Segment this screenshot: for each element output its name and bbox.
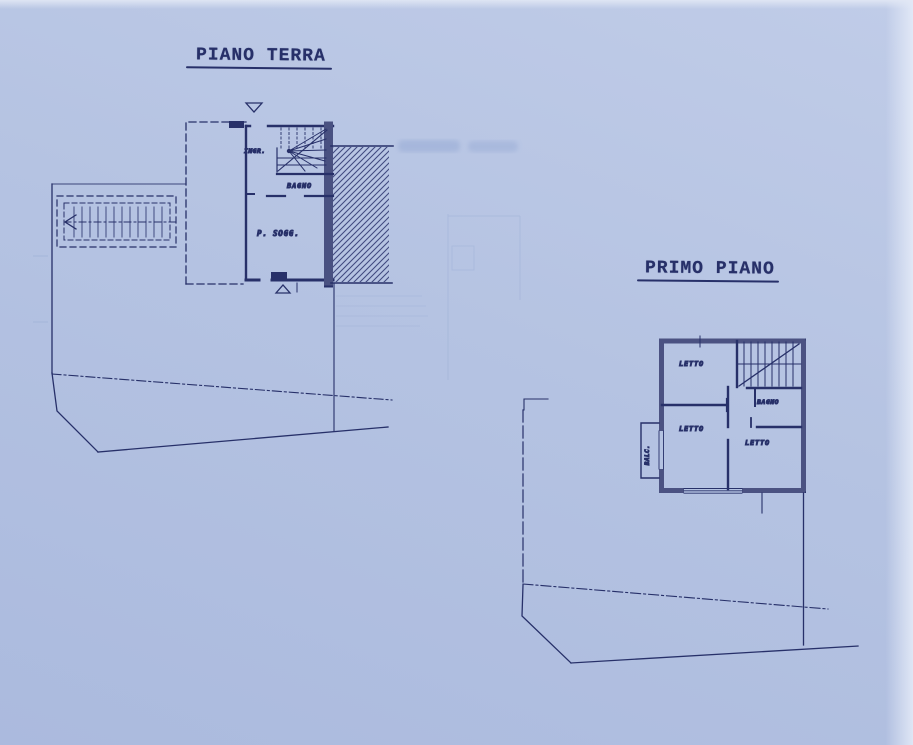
first-staircase [737,341,801,387]
south-entry-marker-icon [276,285,290,293]
ground-floor-plan: INGR. BAGNO P. SOGG. [52,103,393,452]
first-interior-walls [662,387,801,489]
room-label-soggiorno: P. SOGG. [257,229,300,238]
scanned-floor-plan-page: PIANO TERRA PRIMO PIANO [0,0,913,745]
ground-interior-walls [246,194,333,196]
room-label-ingresso: INGR. [244,147,266,155]
room-label-bagno-first: BAGNO [756,398,779,406]
driveway-ramp [57,196,176,247]
first-floor-plan: LETTO LETTO LETTO BAGNO BALC. [522,336,858,663]
floor-plan-drawing: INGR. BAGNO P. SOGG. [0,0,913,745]
room-label-letto-3: LETTO [745,439,770,447]
north-entry-marker-icon [246,103,262,112]
room-label-letto-1: LETTO [679,360,704,368]
room-label-letto-2: LETTO [679,425,704,433]
ground-dashed-lot-outline [186,122,246,284]
room-label-balcone: BALC. [644,445,651,467]
adjacent-building-hatch [331,146,393,283]
first-site-boundary [522,399,858,663]
ghost-bleedthrough-marks [33,140,520,380]
room-label-bagno-ground: BAGNO [286,182,312,190]
